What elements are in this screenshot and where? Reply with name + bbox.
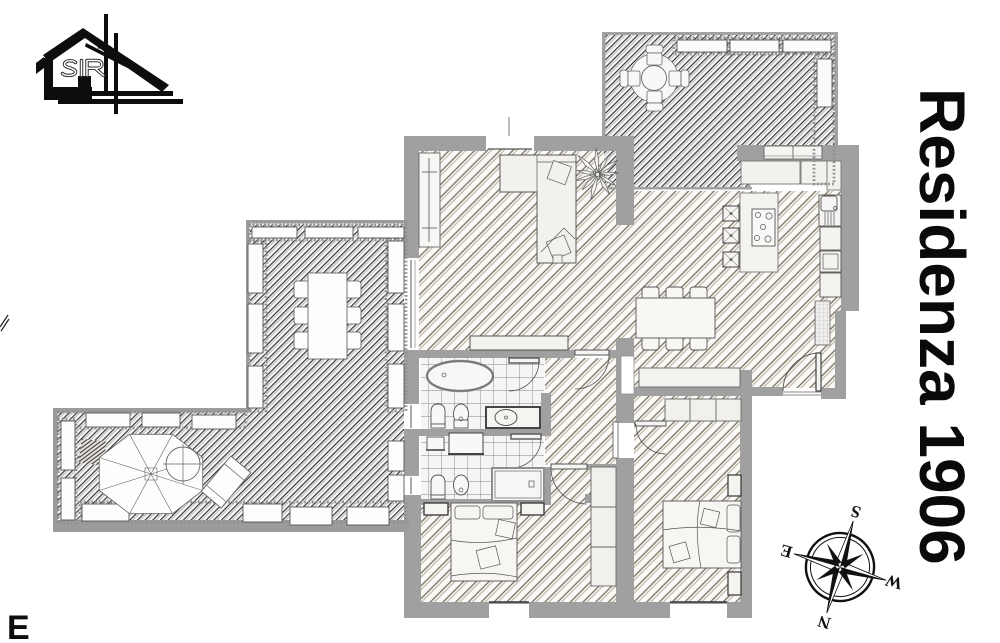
svg-text:N: N <box>815 611 833 633</box>
svg-text:E: E <box>7 609 30 643</box>
svg-text:E: E <box>778 540 794 561</box>
svg-text:W: W <box>883 570 905 593</box>
svg-text:S: S <box>849 501 863 522</box>
svg-text:Residenza 1906: Residenza 1906 <box>906 88 978 565</box>
